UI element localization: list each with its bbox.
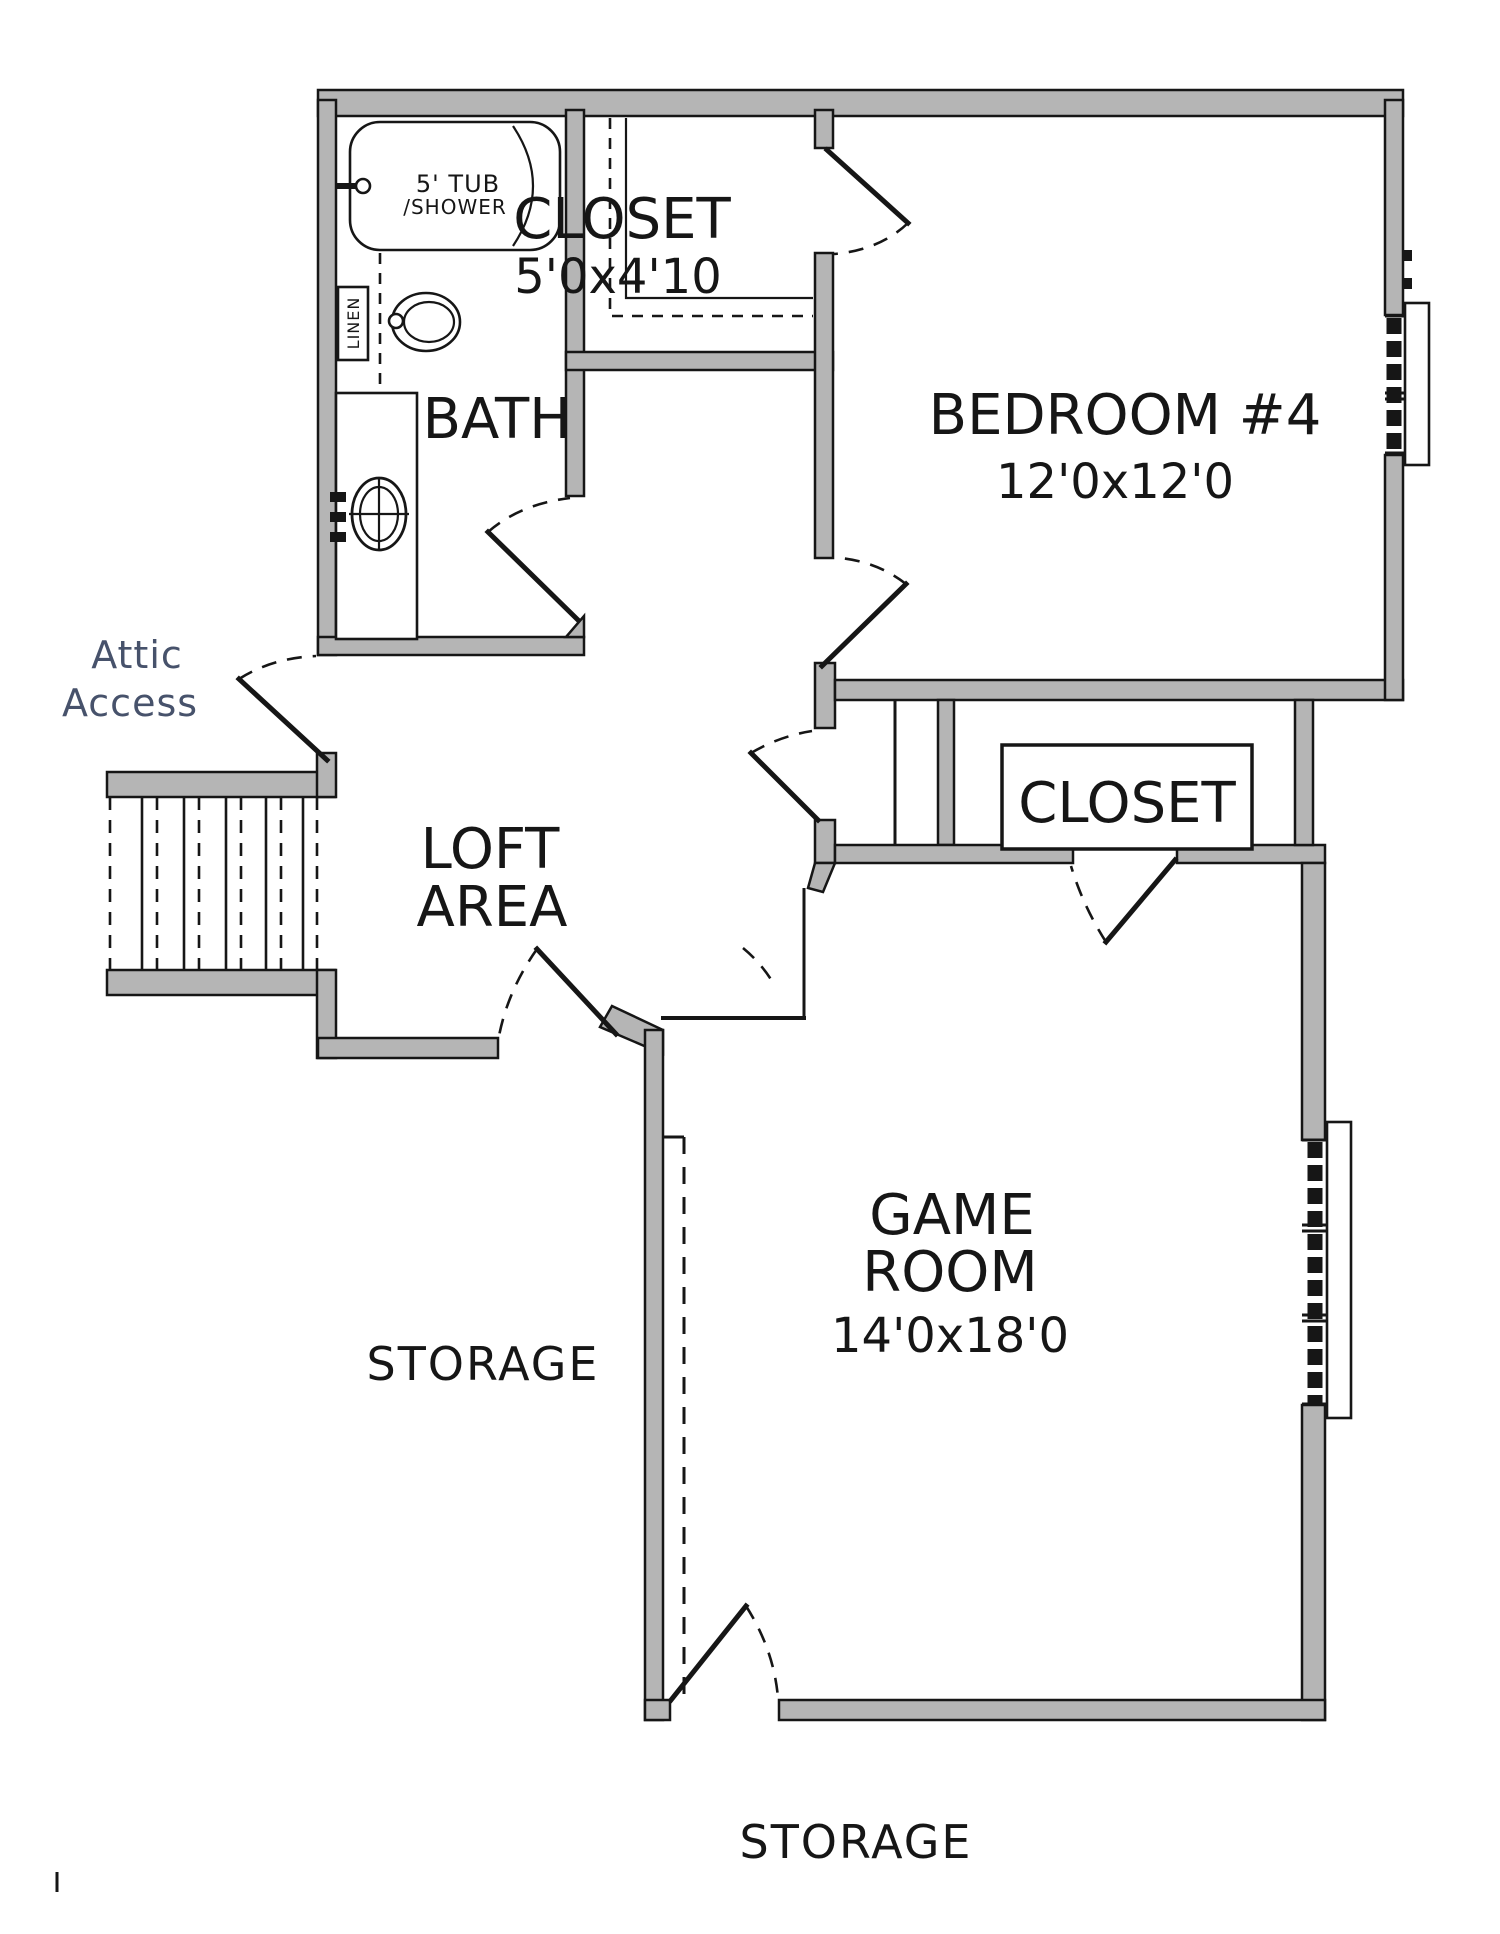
bath-label: BATH (423, 387, 572, 452)
loft-label-line2: AREA (417, 875, 568, 940)
walls (107, 90, 1403, 1720)
toilet-flush (389, 314, 403, 328)
wall-closet-top-bottom (566, 352, 833, 370)
sink-faucet-handle2 (330, 532, 346, 542)
closet-game-label: CLOSET (1018, 771, 1236, 836)
bedroom4-label: BEDROOM #4 (929, 383, 1322, 448)
attic-access-label-line2: Access (62, 681, 198, 725)
attic-access-label-line1: Attic (91, 633, 183, 677)
stairs-bottom-rail (107, 970, 335, 995)
wall-closet-game-right (1295, 700, 1313, 845)
game-room-dims: 14'0x18'0 (831, 1308, 1069, 1364)
wall-bedroom-bottom (835, 680, 1403, 700)
wall-bedroom-west (815, 253, 833, 558)
wall-game-bottom-right (779, 1700, 1325, 1720)
wall-game-east-lower (1302, 1405, 1325, 1720)
linen-label: LINEN (344, 297, 363, 350)
game-room-window (1302, 1122, 1351, 1418)
tub-label-line1: 5' TUB (416, 170, 500, 198)
attic-access-door (239, 656, 327, 760)
bedroom-door (822, 558, 906, 666)
bath-door (488, 498, 578, 620)
storage-bottom-label: STORAGE (740, 1815, 973, 1869)
game-room-label-line2: ROOM (862, 1240, 1037, 1305)
wall-game-east-upper (1302, 863, 1325, 1140)
closet-game-door (1071, 860, 1175, 942)
wall-bath-left (318, 100, 336, 655)
wall-loft-south (318, 1038, 498, 1058)
floor-plan-canvas: BATH CLOSET 5'0x4'10 BEDROOM #4 12'0x12'… (0, 0, 1500, 1934)
wall-niche-angle (808, 863, 835, 892)
bedroom-window-sill (1405, 303, 1429, 465)
wall-bedroom-west-stub (815, 110, 833, 148)
tub-label-line2: /SHOWER (403, 195, 507, 219)
floor-plan-page: BATH CLOSET 5'0x4'10 BEDROOM #4 12'0x12'… (0, 0, 1500, 1934)
storage-left-label: STORAGE (367, 1337, 600, 1391)
closet-top-door (827, 150, 908, 254)
wall-top (318, 90, 1403, 116)
window-frame-tick2 (1403, 278, 1412, 289)
wall-niche-stub (815, 820, 835, 863)
stairs (110, 797, 317, 970)
bedroom4-dims: 12'0x12'0 (996, 454, 1234, 510)
game-room-bottom-door (671, 1606, 778, 1700)
wall-bedroom-door-stub (815, 663, 835, 728)
game-room-window-sill (1327, 1122, 1351, 1418)
sink-faucet (330, 492, 346, 502)
closet-top-label: CLOSET (513, 187, 731, 252)
window-frame-tick (1403, 250, 1412, 261)
tub-faucet (356, 179, 370, 193)
wall-game-bottom-left (645, 1700, 670, 1720)
wall-game-west (645, 1030, 663, 1720)
stairs-top-rail (107, 772, 335, 797)
game-room-label-line1: GAME (869, 1183, 1034, 1248)
wall-bedroom-right-upper (1385, 100, 1403, 315)
closet-top-dims: 5'0x4'10 (514, 249, 722, 305)
loft-label-line1: LOFT (421, 817, 561, 882)
sink-faucet-handle (330, 512, 346, 522)
bedroom-window (1385, 303, 1429, 465)
hall-niche-door (751, 731, 818, 820)
wall-niche-east (938, 700, 954, 845)
wall-bedroom-right-lower (1385, 455, 1403, 700)
